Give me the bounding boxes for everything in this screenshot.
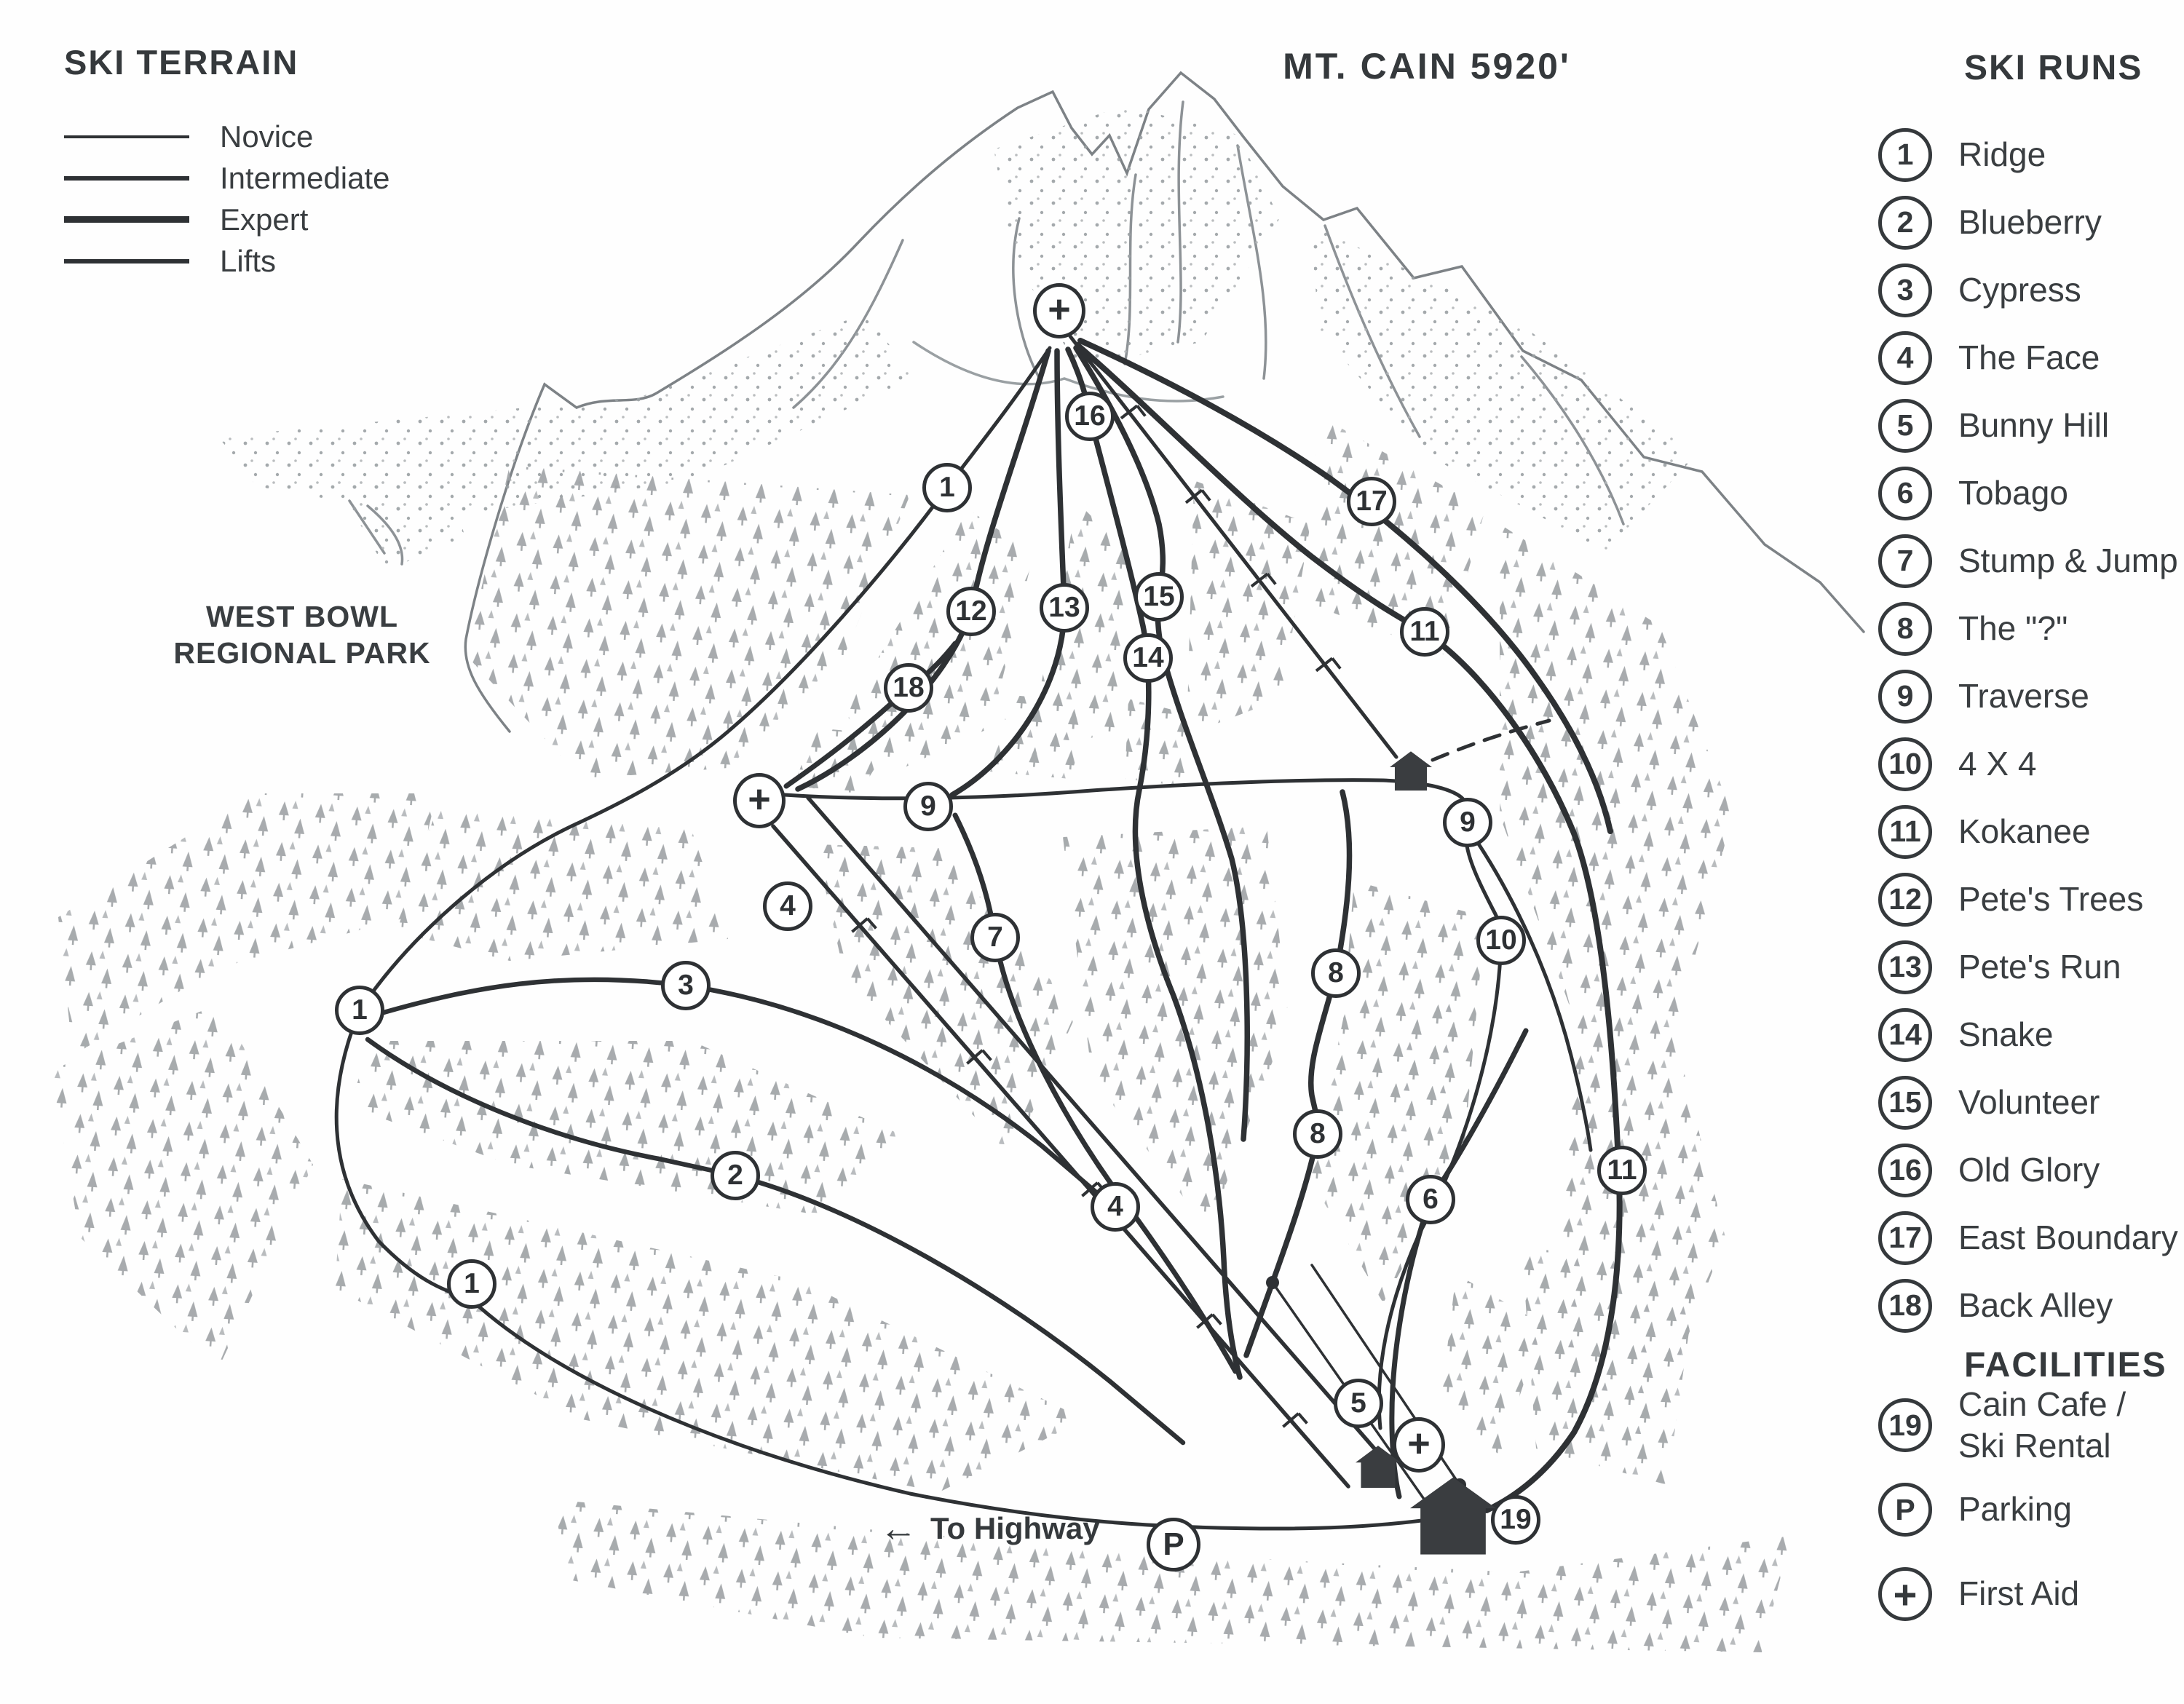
map-marker-run-9: 9 — [903, 782, 953, 831]
legend-row: Lifts — [64, 240, 389, 282]
map-marker-run-13: 13 — [1040, 583, 1089, 633]
legend-row: Novice — [64, 116, 389, 157]
run-number-badge: 18 — [1878, 1279, 1932, 1333]
ski-runs-title: SKI RUNS — [1964, 48, 2143, 88]
legend-item-label: Intermediate — [220, 161, 389, 196]
run-name-label: The Face — [1958, 337, 2100, 379]
ski-run-list-item-5: 5 Bunny Hill — [1878, 392, 2178, 459]
facility-label: Parking — [1958, 1489, 2072, 1531]
run-number-badge: 12 — [1878, 873, 1932, 927]
run-number-badge: 13 — [1878, 940, 1932, 994]
run-number-badge: 16 — [1878, 1144, 1932, 1197]
facility-list-item-first-aid: + First Aid — [1878, 1552, 2126, 1636]
map-marker-run-8: 8 — [1293, 1109, 1342, 1159]
run-number-badge: 10 — [1878, 737, 1932, 791]
facility-badge: 19 — [1878, 1398, 1932, 1452]
run-name-label: Snake — [1958, 1014, 2053, 1056]
map-marker-run-3: 3 — [661, 961, 711, 1010]
legend-title: SKI TERRAIN — [64, 42, 389, 82]
run-number-badge: 1 — [1878, 128, 1932, 182]
marker-label: 12 — [955, 595, 986, 627]
run-name-label: The "?" — [1958, 608, 2068, 650]
run-name-label: Cypress — [1958, 269, 2081, 312]
run-number-badge: 15 — [1878, 1076, 1932, 1130]
ski-run-list-item-14: 14 Snake — [1878, 1001, 2178, 1069]
run-number-badge: 4 — [1878, 331, 1932, 385]
marker-label: + — [748, 777, 771, 822]
facilities-list: 19 Cain Cafe / Ski Rental P Parking + Fi… — [1878, 1383, 2126, 1636]
run-name-label: Bunny Hill — [1958, 405, 2109, 447]
marker-label: 1 — [464, 1268, 480, 1300]
marker-label: 11 — [1409, 616, 1439, 648]
run-name-label: Traverse — [1958, 675, 2089, 718]
map-marker-run-19: 19 — [1491, 1495, 1540, 1545]
marker-label: 1 — [939, 472, 955, 504]
marker-label: 19 — [1500, 1504, 1531, 1536]
legend-line-sample — [64, 176, 189, 181]
to-highway-label: ← To Highway — [879, 1507, 1100, 1550]
run-name-label: Blueberry — [1958, 202, 2102, 244]
run-name-label: Old Glory — [1958, 1149, 2100, 1192]
run-number-badge: 8 — [1878, 602, 1932, 656]
run-name-label: East Boundary — [1958, 1217, 2178, 1259]
facility-list-item-P: P Parking — [1878, 1467, 2126, 1552]
marker-label: 5 — [1350, 1387, 1366, 1419]
ski-run-list-item-10: 10 4 X 4 — [1878, 730, 2178, 798]
marker-label: 3 — [678, 970, 694, 1002]
legend-item-label: Novice — [220, 119, 313, 154]
facility-label: First Aid — [1958, 1573, 2079, 1615]
run-number-badge: 17 — [1878, 1211, 1932, 1265]
map-marker-run-11: 11 — [1400, 607, 1449, 657]
legend-item-label: Expert — [220, 202, 308, 237]
run-number-badge: 3 — [1878, 263, 1932, 317]
ski-run-list-item-18: 18 Back Alley — [1878, 1272, 2178, 1339]
map-marker-parking-P: P — [1147, 1518, 1200, 1572]
map-marker-run-4: 4 — [1091, 1182, 1140, 1232]
map-marker-run-12: 12 — [946, 587, 996, 636]
marker-label: 7 — [987, 922, 1003, 954]
facility-label: Cain Cafe / Ski Rental — [1958, 1384, 2126, 1467]
ski-run-list-item-7: 7 Stump & Jump — [1878, 527, 2178, 595]
ski-run-list-item-3: 3 Cypress — [1878, 256, 2178, 324]
map-marker-run-2: 2 — [711, 1151, 760, 1200]
marker-label: 14 — [1132, 642, 1163, 674]
facility-list-item-19: 19 Cain Cafe / Ski Rental — [1878, 1383, 2126, 1467]
map-marker-run-5: 5 — [1334, 1379, 1383, 1428]
map-marker-run-14: 14 — [1123, 633, 1173, 683]
run-name-label: Tobago — [1958, 472, 2068, 515]
run-number-badge: 11 — [1878, 805, 1932, 859]
run-name-label: Stump & Jump — [1958, 540, 2178, 582]
marker-label: 10 — [1485, 924, 1516, 956]
marker-label: 11 — [1607, 1154, 1637, 1186]
facility-label-line1: Parking — [1958, 1490, 2072, 1528]
ski-run-list-item-1: 1 Ridge — [1878, 121, 2178, 189]
run-name-label: Ridge — [1958, 134, 2046, 176]
map-marker-firstaid-first-aid: + — [1033, 283, 1085, 338]
run-number-badge: 14 — [1878, 1008, 1932, 1062]
ski-run-list-item-9: 9 Traverse — [1878, 662, 2178, 730]
legend-row: Expert — [64, 199, 389, 240]
legend-line-sample — [64, 259, 189, 263]
map-marker-run-6: 6 — [1406, 1175, 1455, 1224]
ski-run-list-item-13: 13 Pete's Run — [1878, 933, 2178, 1001]
map-marker-run-1: 1 — [447, 1259, 496, 1309]
legend-rows: Novice Intermediate Expert Lifts — [64, 116, 389, 282]
west-bowl-line2: REGIONAL PARK — [149, 635, 455, 671]
map-marker-run-7: 7 — [970, 913, 1020, 962]
ski-run-list-item-8: 8 The "?" — [1878, 595, 2178, 662]
map-marker-run-10: 10 — [1476, 916, 1526, 965]
map-marker-run-8: 8 — [1311, 948, 1361, 998]
map-marker-run-1: 1 — [335, 986, 384, 1035]
west-bowl-line1: WEST BOWL — [149, 598, 455, 635]
run-number-badge: 9 — [1878, 670, 1932, 724]
run-number-badge: 2 — [1878, 196, 1932, 250]
marker-label: 9 — [1460, 807, 1476, 839]
run-name-label: Pete's Trees — [1958, 879, 2143, 921]
run-name-label: Back Alley — [1958, 1285, 2113, 1327]
to-highway-text: To Highway — [930, 1511, 1100, 1546]
ski-run-list-item-17: 17 East Boundary — [1878, 1204, 2178, 1272]
map-marker-run-4: 4 — [763, 881, 812, 931]
marker-label: 13 — [1048, 592, 1080, 624]
marker-label: 9 — [920, 790, 936, 823]
marker-label: 6 — [1423, 1184, 1439, 1216]
map-marker-run-15: 15 — [1134, 572, 1184, 622]
map-marker-firstaid-first-aid: + — [733, 773, 786, 828]
map-marker-run-17: 17 — [1347, 477, 1396, 526]
map-marker-run-16: 16 — [1065, 392, 1115, 441]
legend-row: Intermediate — [64, 157, 389, 199]
facility-badge: + — [1878, 1567, 1932, 1621]
marker-label: 16 — [1074, 400, 1105, 432]
run-name-label: Kokanee — [1958, 811, 2091, 853]
run-number-badge: 7 — [1878, 534, 1932, 588]
map-marker-run-18: 18 — [884, 663, 933, 713]
facility-label-line1: First Aid — [1958, 1574, 2079, 1612]
left-arrow-icon: ← — [879, 1507, 917, 1550]
marker-label: 17 — [1356, 486, 1387, 518]
legend-line-sample — [64, 135, 189, 138]
run-number-badge: 5 — [1878, 399, 1932, 453]
ski-run-list-item-12: 12 Pete's Trees — [1878, 865, 2178, 933]
run-name-label: Pete's Run — [1958, 946, 2121, 988]
ski-runs-list: 1 Ridge 2 Blueberry 3 Cypress 4 The Face… — [1878, 121, 2178, 1339]
map-marker-run-11: 11 — [1597, 1146, 1647, 1195]
marker-label: 4 — [780, 890, 796, 922]
terrain-legend: SKI TERRAIN Novice Intermediate Expert L… — [64, 42, 389, 282]
map-marker-run-9: 9 — [1443, 798, 1492, 847]
marker-label: 8 — [1310, 1118, 1326, 1150]
ski-map-poster: MT. CAIN 5920' SKI TERRAIN Novice Interm… — [0, 0, 2184, 1704]
ski-run-list-item-2: 2 Blueberry — [1878, 189, 2178, 256]
marker-label: 8 — [1328, 957, 1344, 989]
marker-label: + — [1407, 1421, 1431, 1466]
map-marker-run-1: 1 — [922, 463, 972, 512]
marker-label: 1 — [352, 994, 368, 1026]
ski-run-list-item-16: 16 Old Glory — [1878, 1136, 2178, 1204]
marker-label: 2 — [727, 1160, 743, 1192]
ski-run-list-item-6: 6 Tobago — [1878, 459, 2178, 527]
facility-label-line1: Cain Cafe / — [1958, 1385, 2126, 1423]
ski-run-list-item-15: 15 Volunteer — [1878, 1069, 2178, 1136]
facility-label-line2: Ski Rental — [1958, 1427, 2111, 1465]
ski-run-list-item-11: 11 Kokanee — [1878, 798, 2178, 865]
map-title: MT. CAIN 5920' — [1208, 45, 1645, 87]
run-name-label: 4 X 4 — [1958, 743, 2036, 785]
run-number-badge: 6 — [1878, 467, 1932, 520]
marker-label: 18 — [893, 672, 924, 704]
marker-label: + — [1048, 287, 1071, 332]
facility-badge: P — [1878, 1483, 1932, 1537]
facilities-title: FACILITIES — [1964, 1345, 2167, 1385]
marker-label: 4 — [1107, 1191, 1123, 1223]
marker-label: 15 — [1143, 581, 1174, 613]
ski-run-list-item-4: 4 The Face — [1878, 324, 2178, 392]
map-marker-firstaid-first-aid: + — [1393, 1417, 1445, 1473]
run-name-label: Volunteer — [1958, 1082, 2100, 1124]
west-bowl-label: WEST BOWL REGIONAL PARK — [149, 598, 455, 671]
marker-label: P — [1163, 1526, 1184, 1563]
legend-line-sample — [64, 216, 189, 223]
legend-item-label: Lifts — [220, 244, 276, 279]
